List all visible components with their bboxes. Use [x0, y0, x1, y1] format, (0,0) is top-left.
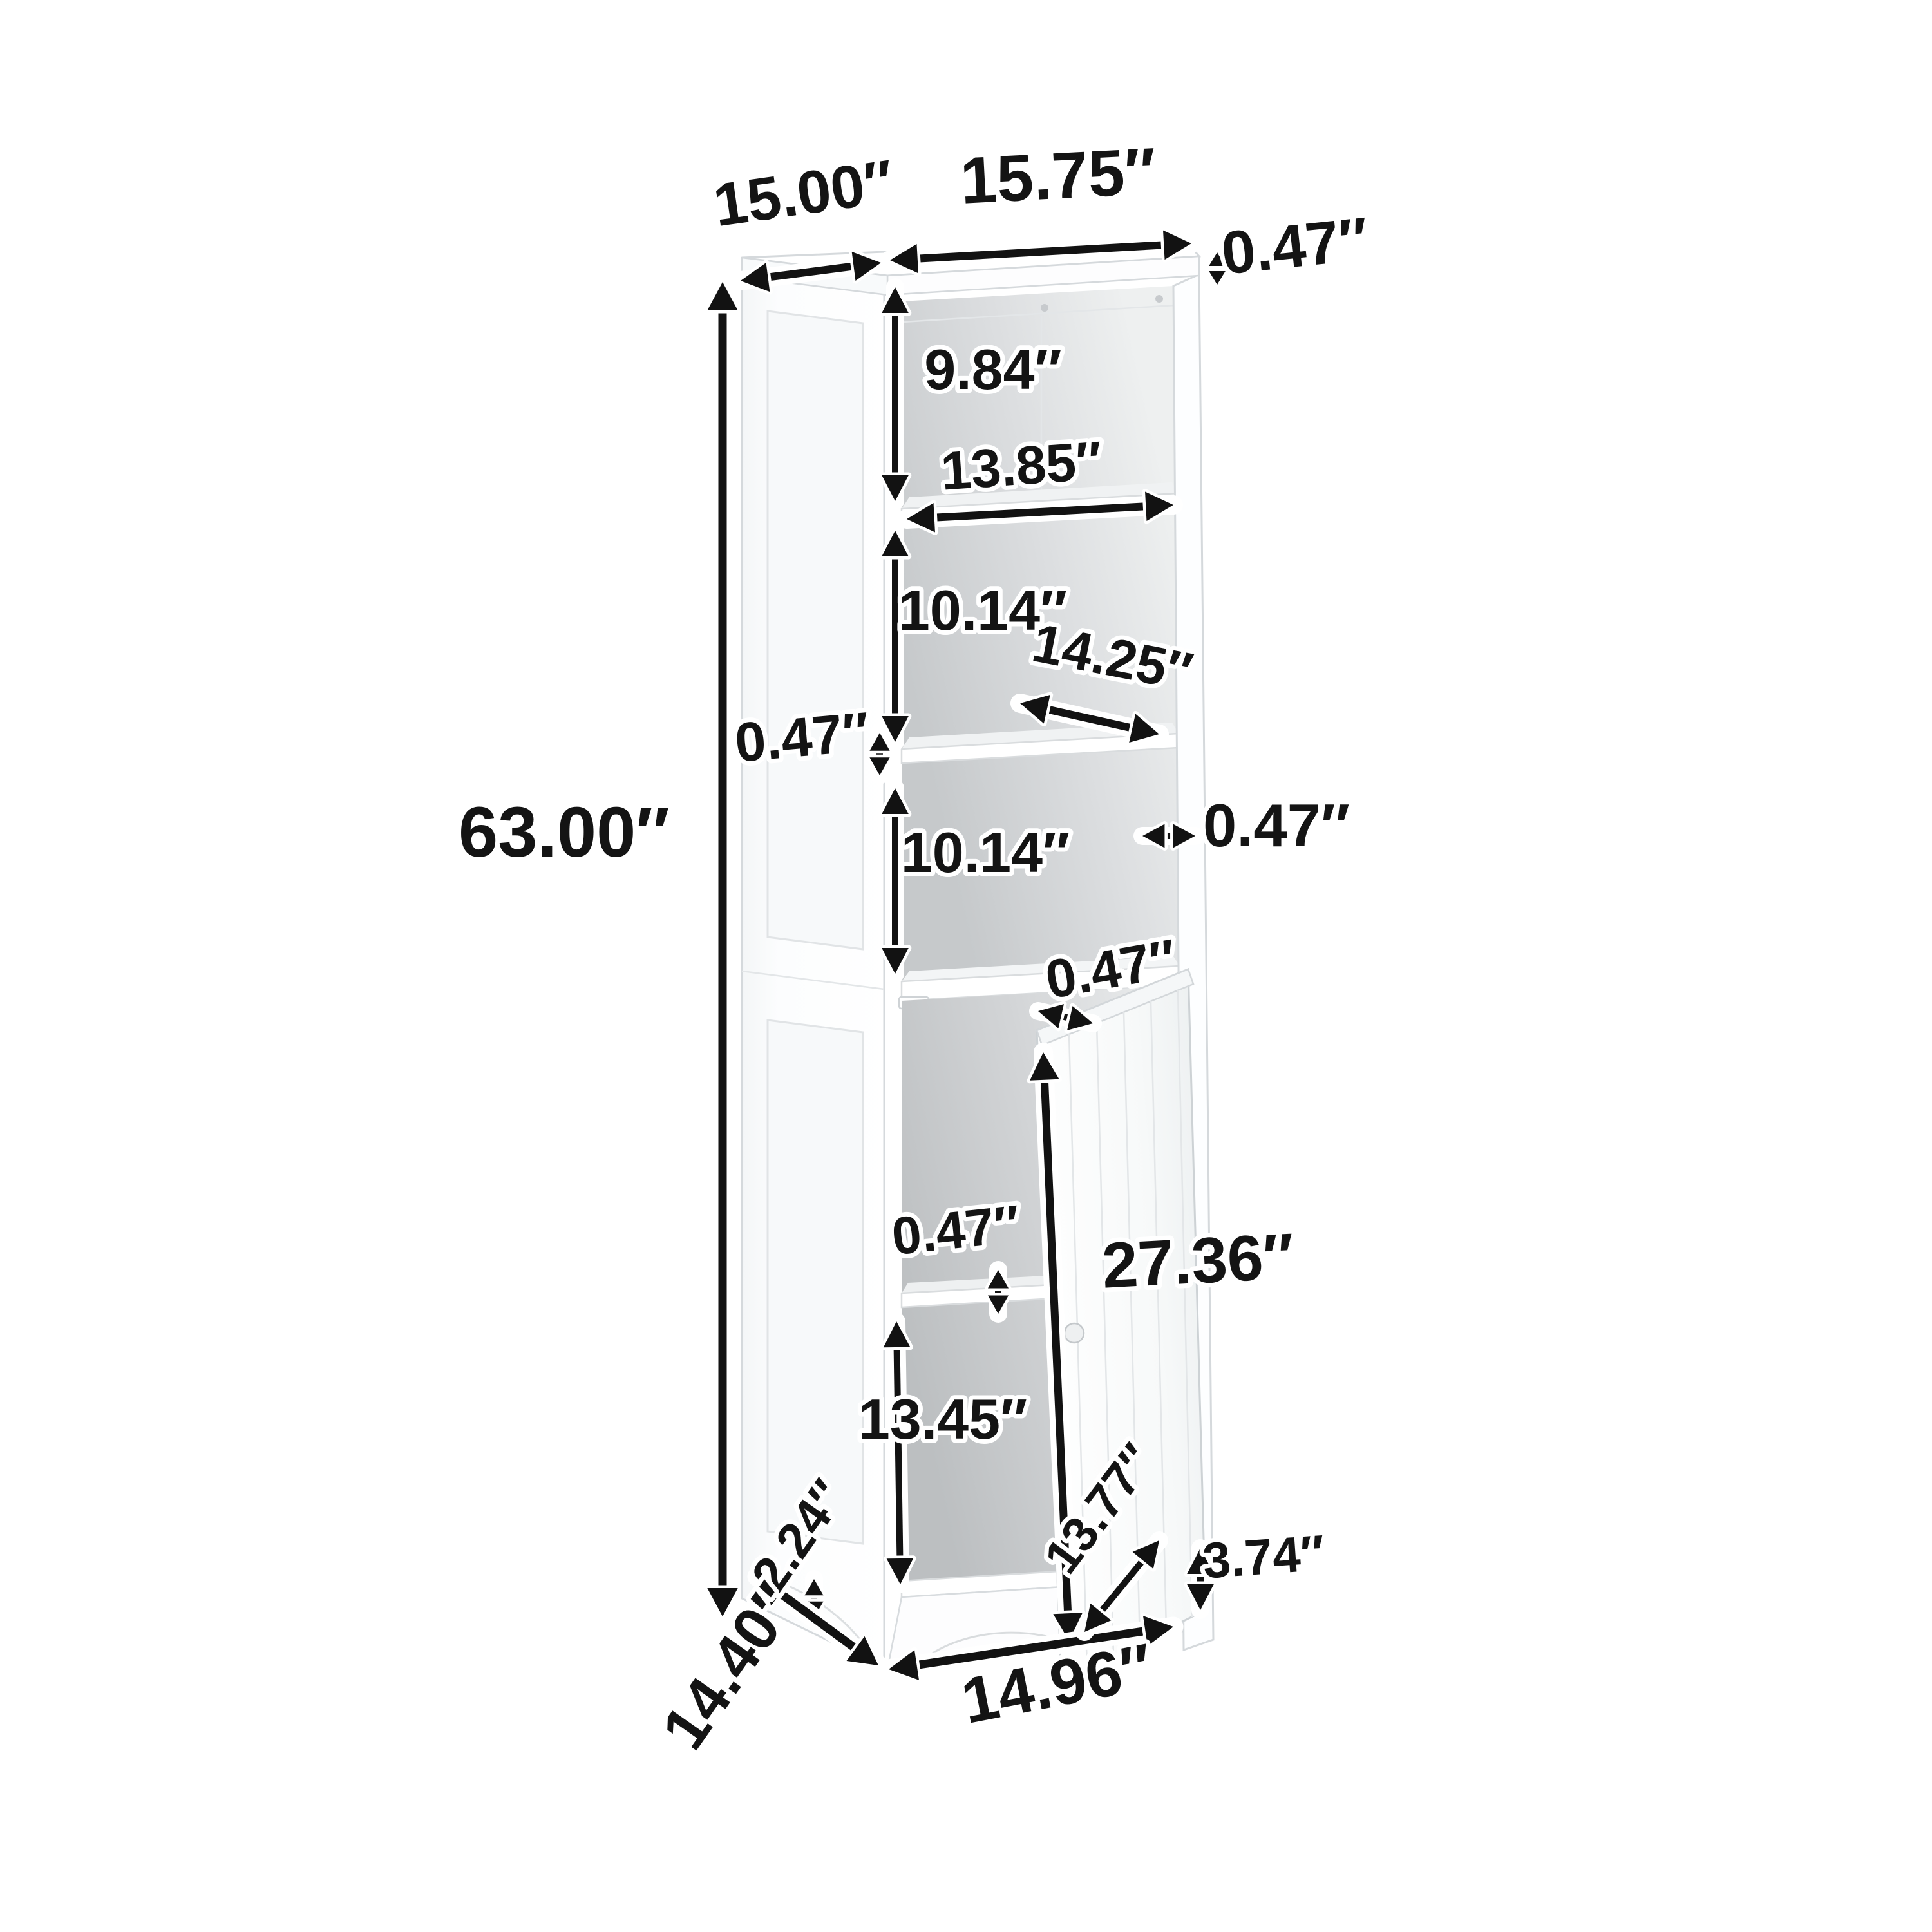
- side-recessed-panel-upper: [768, 311, 863, 949]
- dim-label-overall-height: 63.00″: [459, 793, 670, 872]
- dim-label-shelf-thickness: 0.47″: [732, 701, 871, 774]
- dimension-diagram: 63.00″ 15.00″ 15.75″ 0.47″ 9.84″ 13.85″ …: [0, 0, 1932, 1932]
- dim-label-door-section-height: 27.36″: [1100, 1220, 1296, 1302]
- screw-hole: [1155, 295, 1163, 303]
- dim-label-base-apron-height: 3.74″: [1201, 1524, 1327, 1589]
- screw-hole: [1041, 304, 1048, 312]
- arrow-cabinet-shelf-thickness: [988, 1270, 1009, 1314]
- dim-label-lower-open-cubby-height: 10.14″: [901, 820, 1070, 884]
- door-knob: [1065, 1323, 1084, 1343]
- dim-label-top-width: 15.75″: [958, 134, 1158, 218]
- arrow-shelf-thickness: [869, 733, 889, 775]
- dim-label-side-panel-thickness: 0.47″: [1203, 791, 1350, 859]
- dim-label-shelf-width: 13.85″: [939, 430, 1104, 501]
- dim-label-compartment-height: 13.45″: [858, 1387, 1027, 1451]
- arrow-side-panel-thickness: [1142, 824, 1195, 848]
- dim-label-upper-cubby-height: 9.84″: [924, 337, 1061, 401]
- side-recessed-panel-lower: [768, 1020, 863, 1544]
